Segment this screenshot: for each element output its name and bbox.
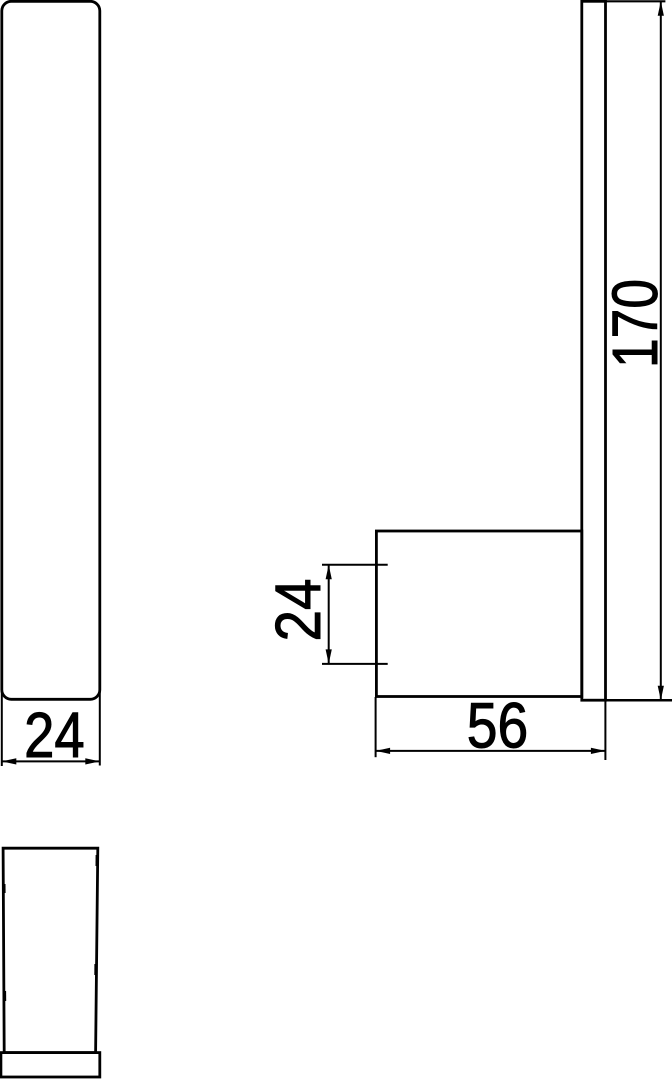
svg-text:24: 24 — [24, 699, 85, 771]
svg-text:56: 56 — [467, 690, 529, 762]
svg-text:24: 24 — [262, 579, 334, 642]
svg-text:170: 170 — [599, 279, 671, 368]
